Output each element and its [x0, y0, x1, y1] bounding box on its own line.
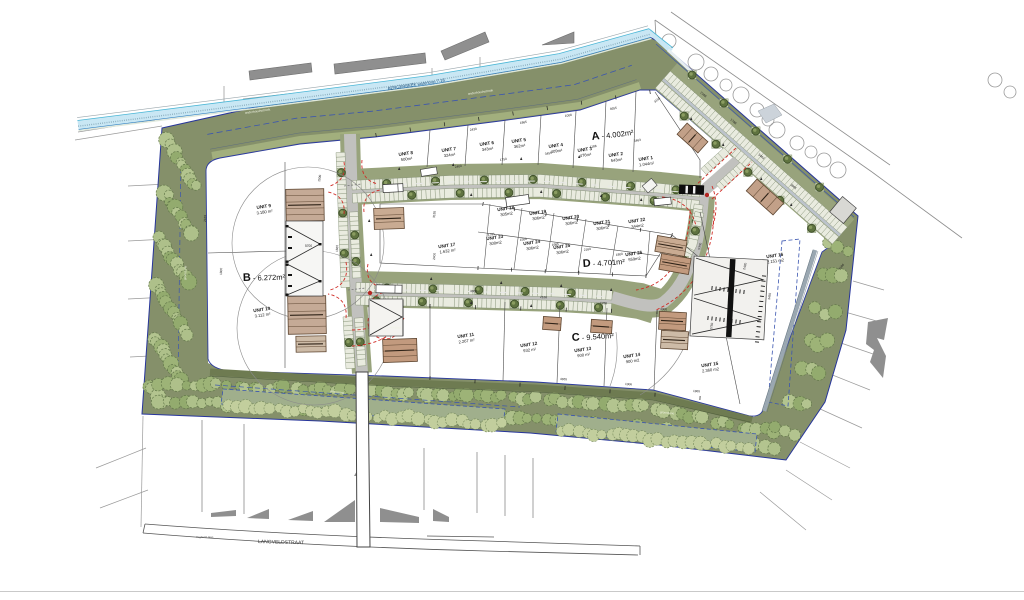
svg-text:2169: 2169	[203, 215, 207, 222]
svg-text:1800: 1800	[219, 268, 223, 275]
svg-text:4000: 4000	[660, 307, 668, 311]
svg-text:A: A	[591, 130, 600, 143]
svg-text:B: B	[243, 272, 251, 284]
svg-text:1788: 1788	[600, 301, 608, 305]
svg-text:voetpad: voetpad	[390, 325, 401, 330]
svg-text:3865: 3865	[470, 289, 478, 293]
svg-text:C: C	[571, 331, 580, 344]
svg-text:- 6.272m²: - 6.272m²	[253, 273, 286, 283]
svg-text:Veghel K laan: Veghel K laan	[196, 535, 214, 539]
svg-text:D: D	[582, 257, 591, 270]
svg-text:4655: 4655	[560, 377, 568, 381]
svg-text:1865: 1865	[693, 389, 701, 393]
svg-text:groenzone: groenzone	[183, 265, 188, 280]
svg-text:2168: 2168	[540, 295, 548, 299]
svg-text:LANGVELDSTRAAT: LANGVELDSTRAAT	[258, 539, 304, 546]
svg-text:5700: 5700	[305, 244, 312, 248]
svg-text:1665: 1665	[335, 245, 339, 252]
svg-text:1006: 1006	[625, 382, 633, 386]
svg-text:3155: 3155	[432, 210, 437, 218]
svg-text:2400: 2400	[432, 252, 437, 260]
